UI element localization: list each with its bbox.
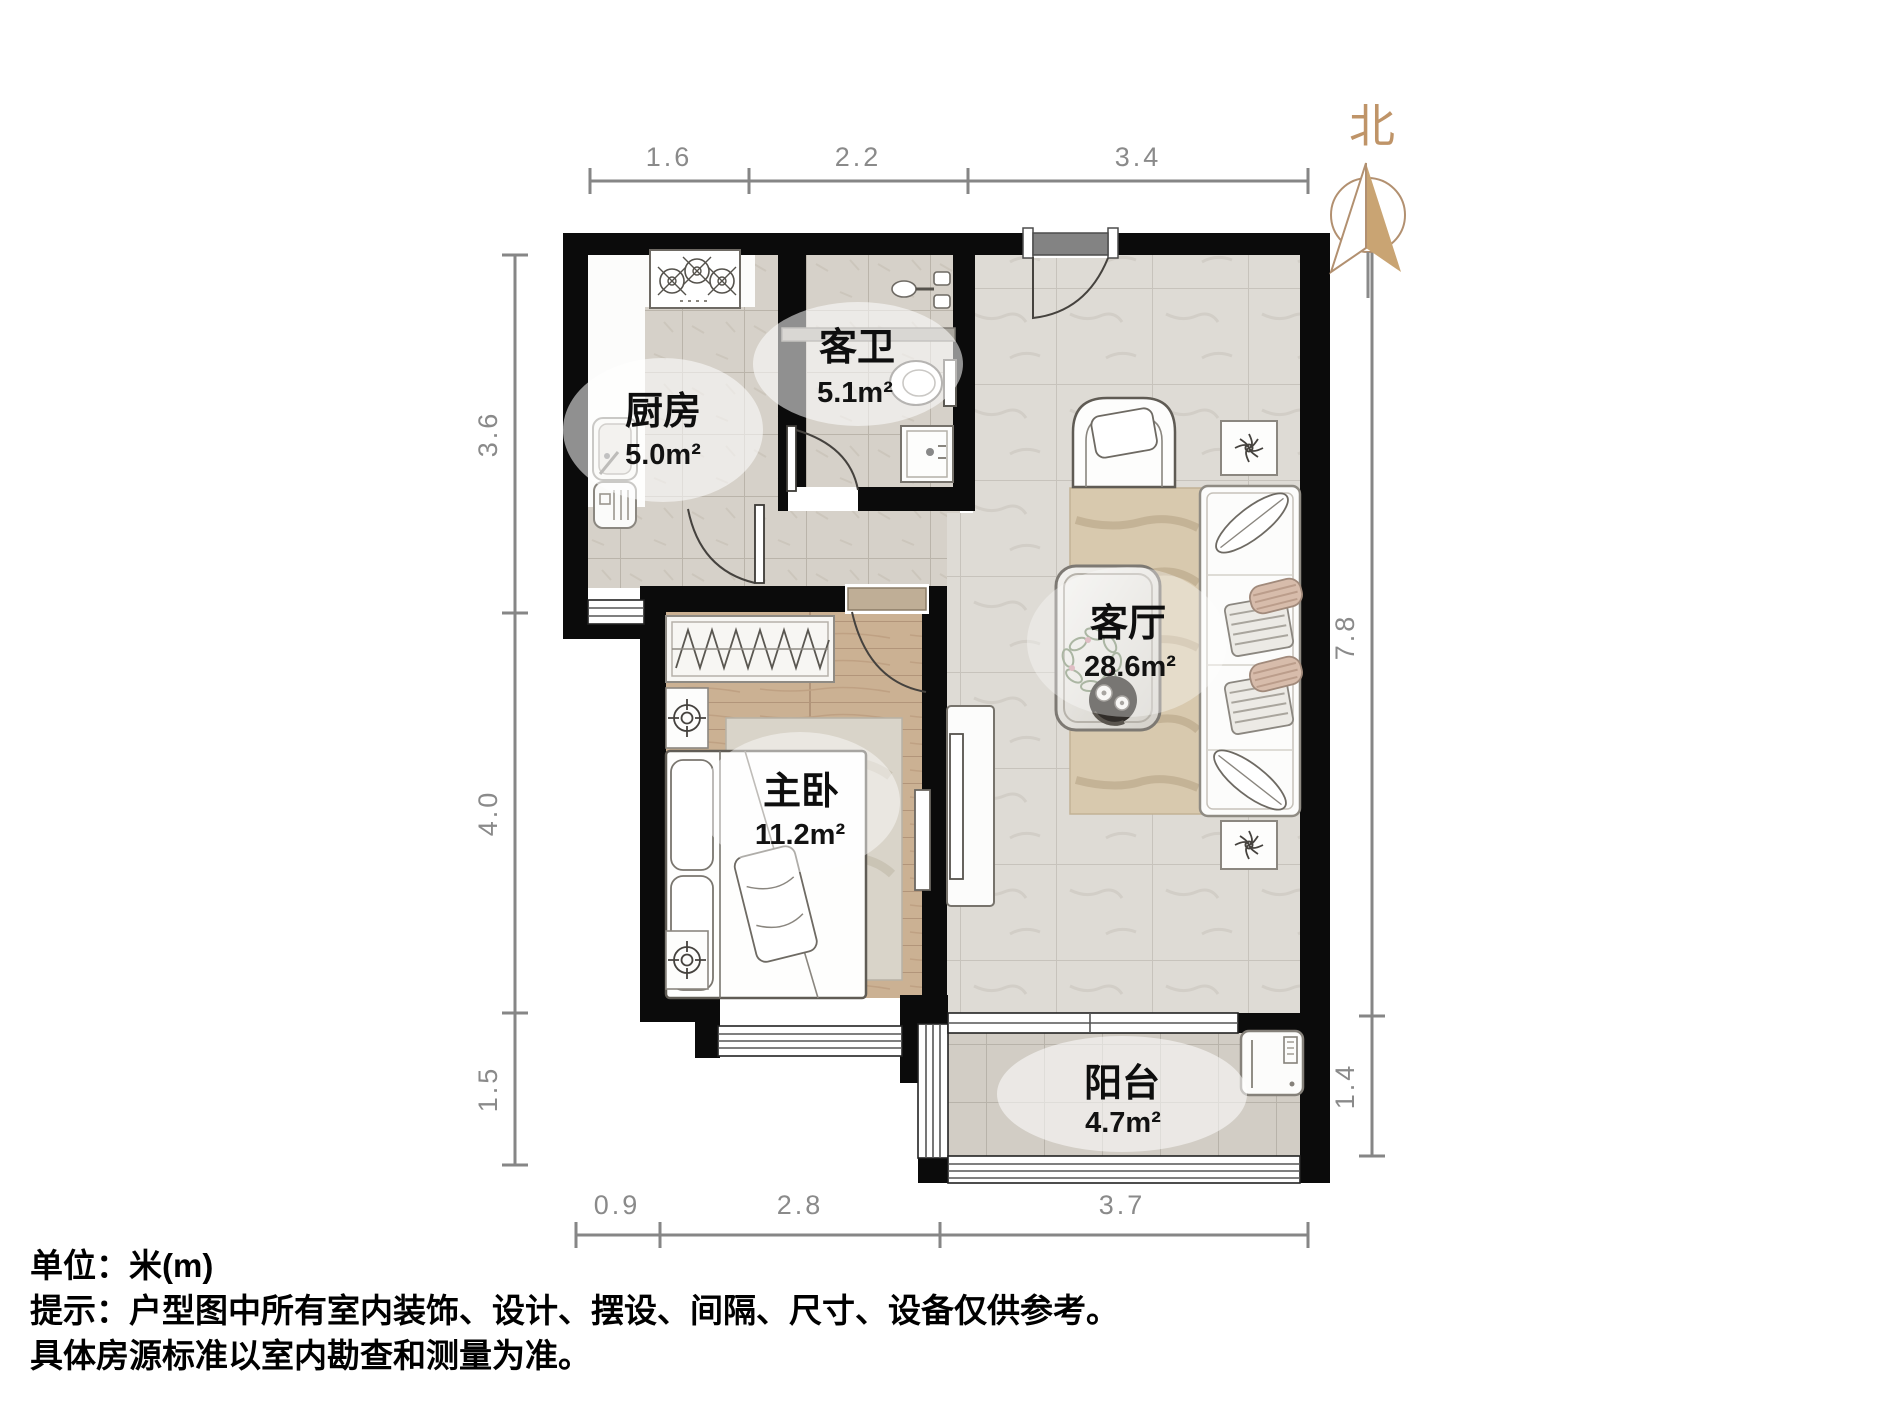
room-label-kitchen: 厨房 bbox=[625, 391, 701, 433]
tip-note-line2: 具体房源标准以室内勘查和测量为准。 bbox=[30, 1333, 1119, 1378]
north-label: 北 bbox=[1349, 100, 1395, 152]
bedside-unit-bottom bbox=[666, 931, 708, 989]
dim-right-2: 1.4 bbox=[1330, 1063, 1360, 1110]
washing-machine bbox=[1241, 1031, 1303, 1095]
plant-pot-top bbox=[1221, 421, 1277, 475]
dim-top-2: 2.2 bbox=[835, 142, 882, 172]
dim-line-right bbox=[1359, 240, 1385, 1156]
entry-jamb-left bbox=[1023, 228, 1033, 258]
wall-right bbox=[1300, 233, 1330, 1183]
dim-bottom-2: 2.8 bbox=[777, 1190, 824, 1220]
room-label-bedroom: 主卧 bbox=[763, 771, 839, 813]
floor-plan: 厨房 5.0m² 客卫 5.1m² 客厅 28.6m² 主卧 11.2m² 阳台… bbox=[0, 0, 1889, 1417]
bedroom-dresser bbox=[915, 790, 930, 890]
north-indicator: 北 bbox=[1331, 100, 1405, 298]
kitchen-window bbox=[588, 600, 644, 624]
dim-right-1: 7.8 bbox=[1330, 614, 1360, 661]
tip-note-line1: 提示：户型图中所有室内装饰、设计、摆设、间隔、尺寸、设备仅供参考。 bbox=[30, 1288, 1119, 1333]
room-label-balcony: 阳台 bbox=[1084, 1063, 1160, 1105]
footnotes: 单位：米(m) 提示：户型图中所有室内装饰、设计、摆设、间隔、尺寸、设备仅供参考… bbox=[30, 1243, 1119, 1378]
dim-bottom-3: 3.7 bbox=[1099, 1190, 1146, 1220]
armchair bbox=[1073, 398, 1175, 487]
north-arrow-left bbox=[1331, 163, 1366, 272]
bathroom-door-opening bbox=[788, 487, 858, 511]
room-label-living: 客厅 bbox=[1090, 602, 1166, 645]
wall-bay-stub-left bbox=[695, 1022, 720, 1058]
dim-left-3: 1.5 bbox=[473, 1066, 503, 1113]
room-area-balcony: 4.7m² bbox=[1085, 1107, 1161, 1139]
room-area-kitchen: 5.0m² bbox=[625, 439, 701, 471]
dim-bottom-1: 0.9 bbox=[594, 1190, 641, 1220]
dim-top-1: 1.6 bbox=[646, 142, 693, 172]
tv bbox=[950, 734, 963, 879]
dim-left-2: 4.0 bbox=[473, 790, 503, 837]
stove bbox=[650, 250, 740, 308]
wall-balcony-bottom-left bbox=[918, 1156, 948, 1183]
dim-top-3: 3.4 bbox=[1115, 142, 1162, 172]
entry-door bbox=[1033, 233, 1108, 255]
balcony-window-bottom bbox=[948, 1156, 1300, 1183]
bedside-unit-top bbox=[666, 688, 708, 748]
dim-left-1: 3.6 bbox=[473, 411, 503, 458]
room-area-living: 28.6m² bbox=[1084, 651, 1176, 683]
tv-cabinet bbox=[947, 706, 994, 906]
entry-jamb-right bbox=[1108, 228, 1118, 258]
bathroom-vanity bbox=[901, 426, 953, 482]
wardrobe bbox=[666, 616, 834, 682]
bedroom-door bbox=[848, 588, 926, 610]
kitchen-door bbox=[755, 505, 764, 583]
dim-line-left bbox=[502, 255, 528, 1165]
room-area-bathroom: 5.1m² bbox=[817, 377, 893, 409]
wall-bedroom-left bbox=[640, 586, 666, 1022]
room-area-bedroom: 11.2m² bbox=[755, 819, 846, 851]
unit-note: 单位：米(m) bbox=[30, 1243, 1119, 1288]
bathroom-door bbox=[787, 426, 796, 491]
room-label-bathroom: 客卫 bbox=[819, 326, 895, 369]
plant-pot-bottom bbox=[1221, 821, 1277, 869]
dim-line-top bbox=[590, 168, 1308, 194]
